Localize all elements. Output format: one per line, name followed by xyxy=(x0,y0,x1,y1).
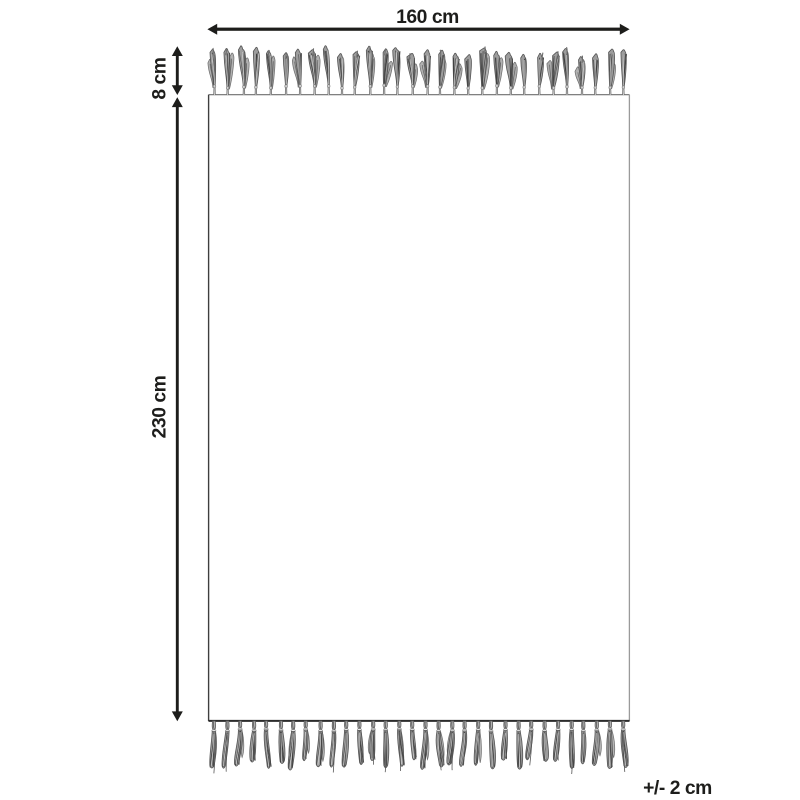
svg-text:8 cm: 8 cm xyxy=(150,58,171,100)
svg-text:+/- 2 cm: +/- 2 cm xyxy=(643,778,712,799)
svg-text:230 cm: 230 cm xyxy=(150,376,171,439)
svg-text:160 cm: 160 cm xyxy=(396,7,459,28)
